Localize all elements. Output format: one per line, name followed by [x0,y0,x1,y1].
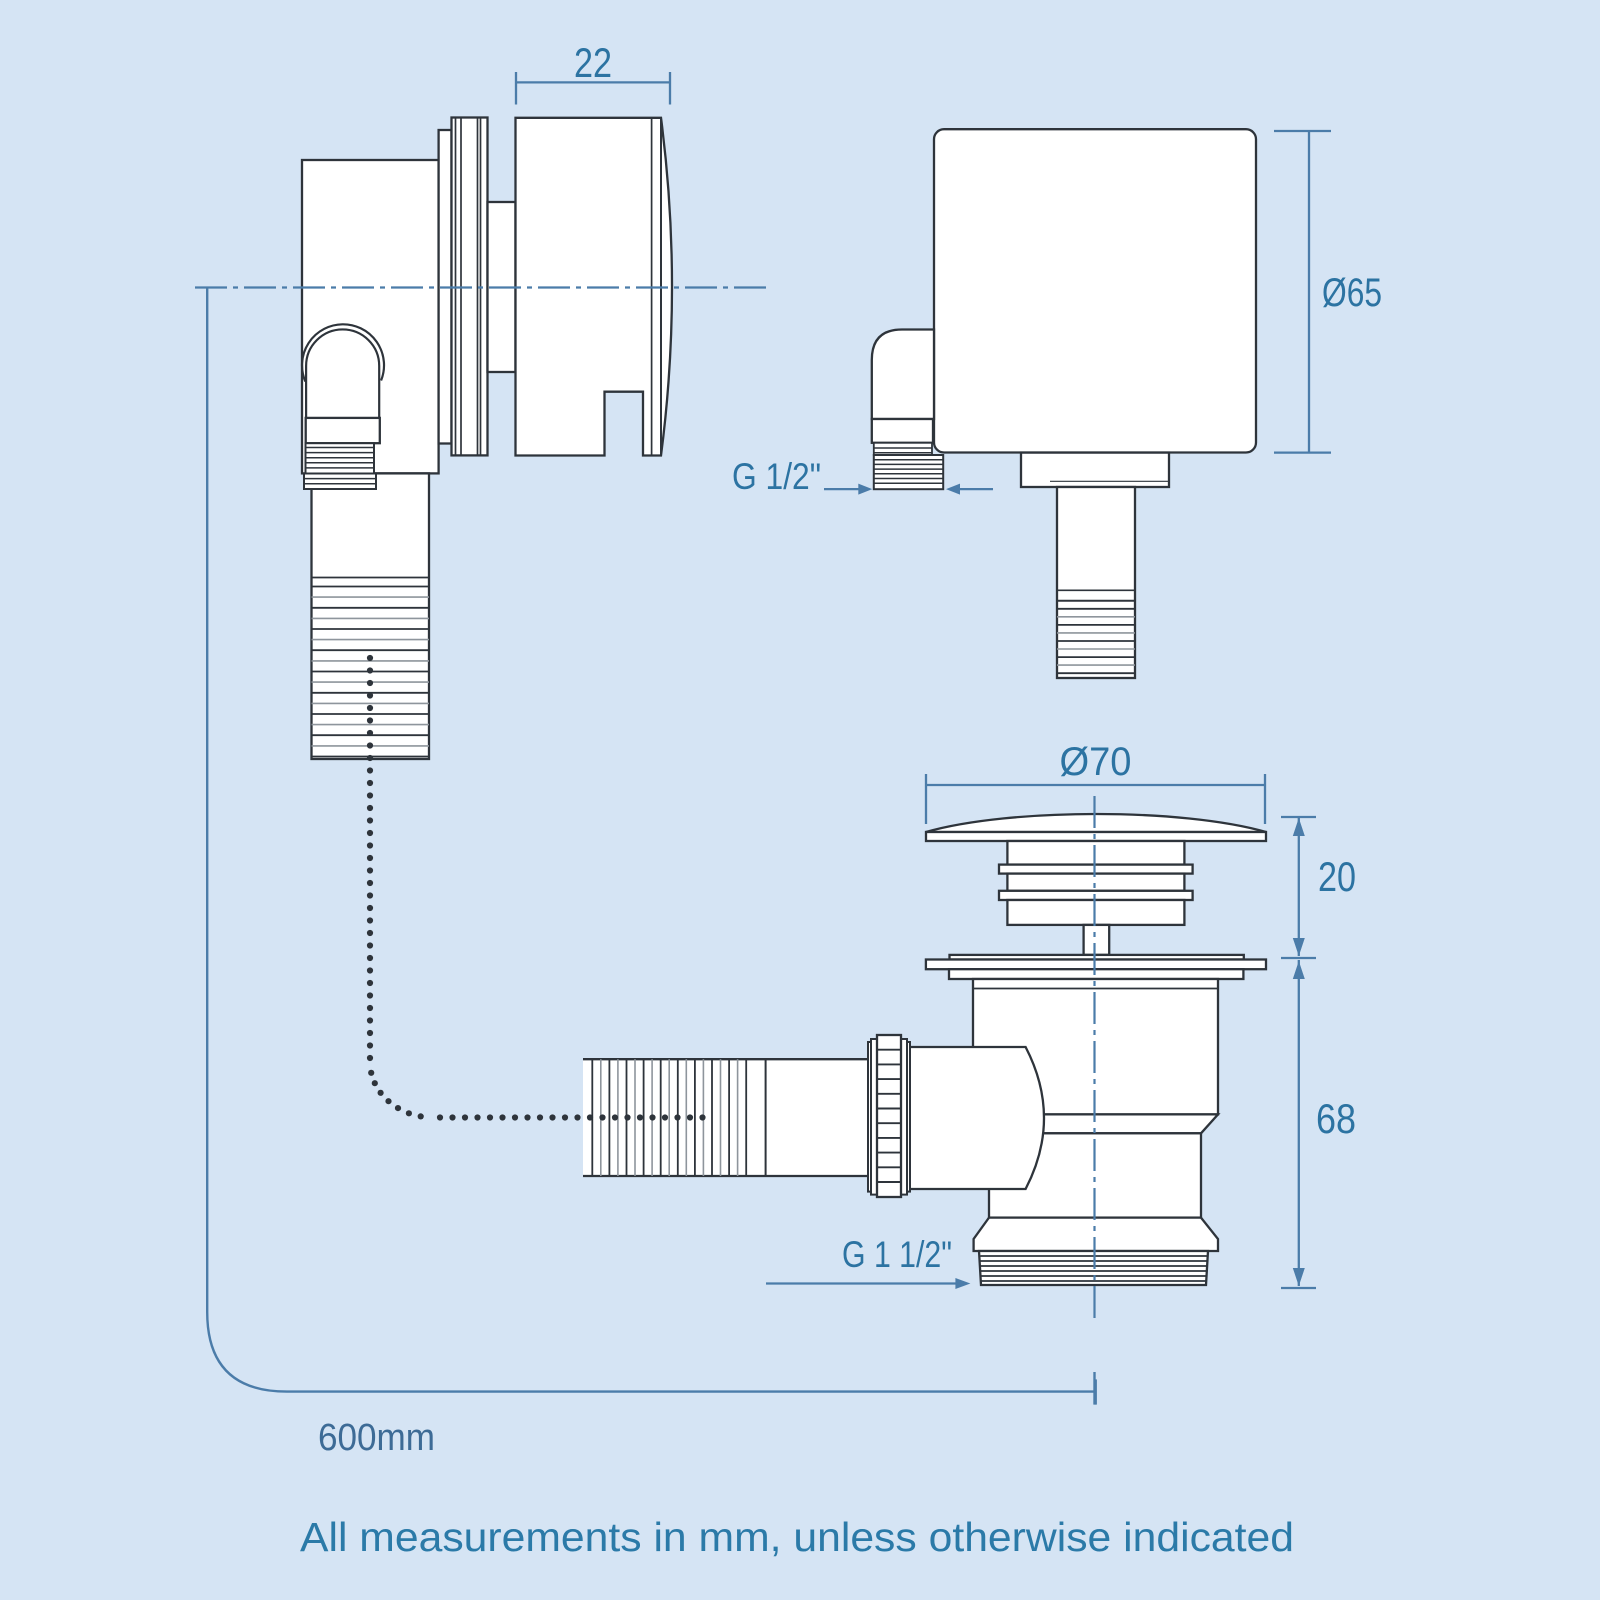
svg-text:G 1 1/2": G 1 1/2" [842,1234,952,1275]
svg-text:G 1/2": G 1/2" [732,456,821,497]
svg-text:Ø65: Ø65 [1322,271,1382,315]
svg-text:20: 20 [1318,853,1356,900]
svg-text:68: 68 [1316,1095,1356,1142]
svg-text:Ø70: Ø70 [1060,740,1132,784]
svg-text:All measurements in mm, unless: All measurements in mm, unless otherwise… [300,1514,1294,1560]
svg-text:600mm: 600mm [318,1417,435,1459]
svg-text:22: 22 [574,39,612,86]
